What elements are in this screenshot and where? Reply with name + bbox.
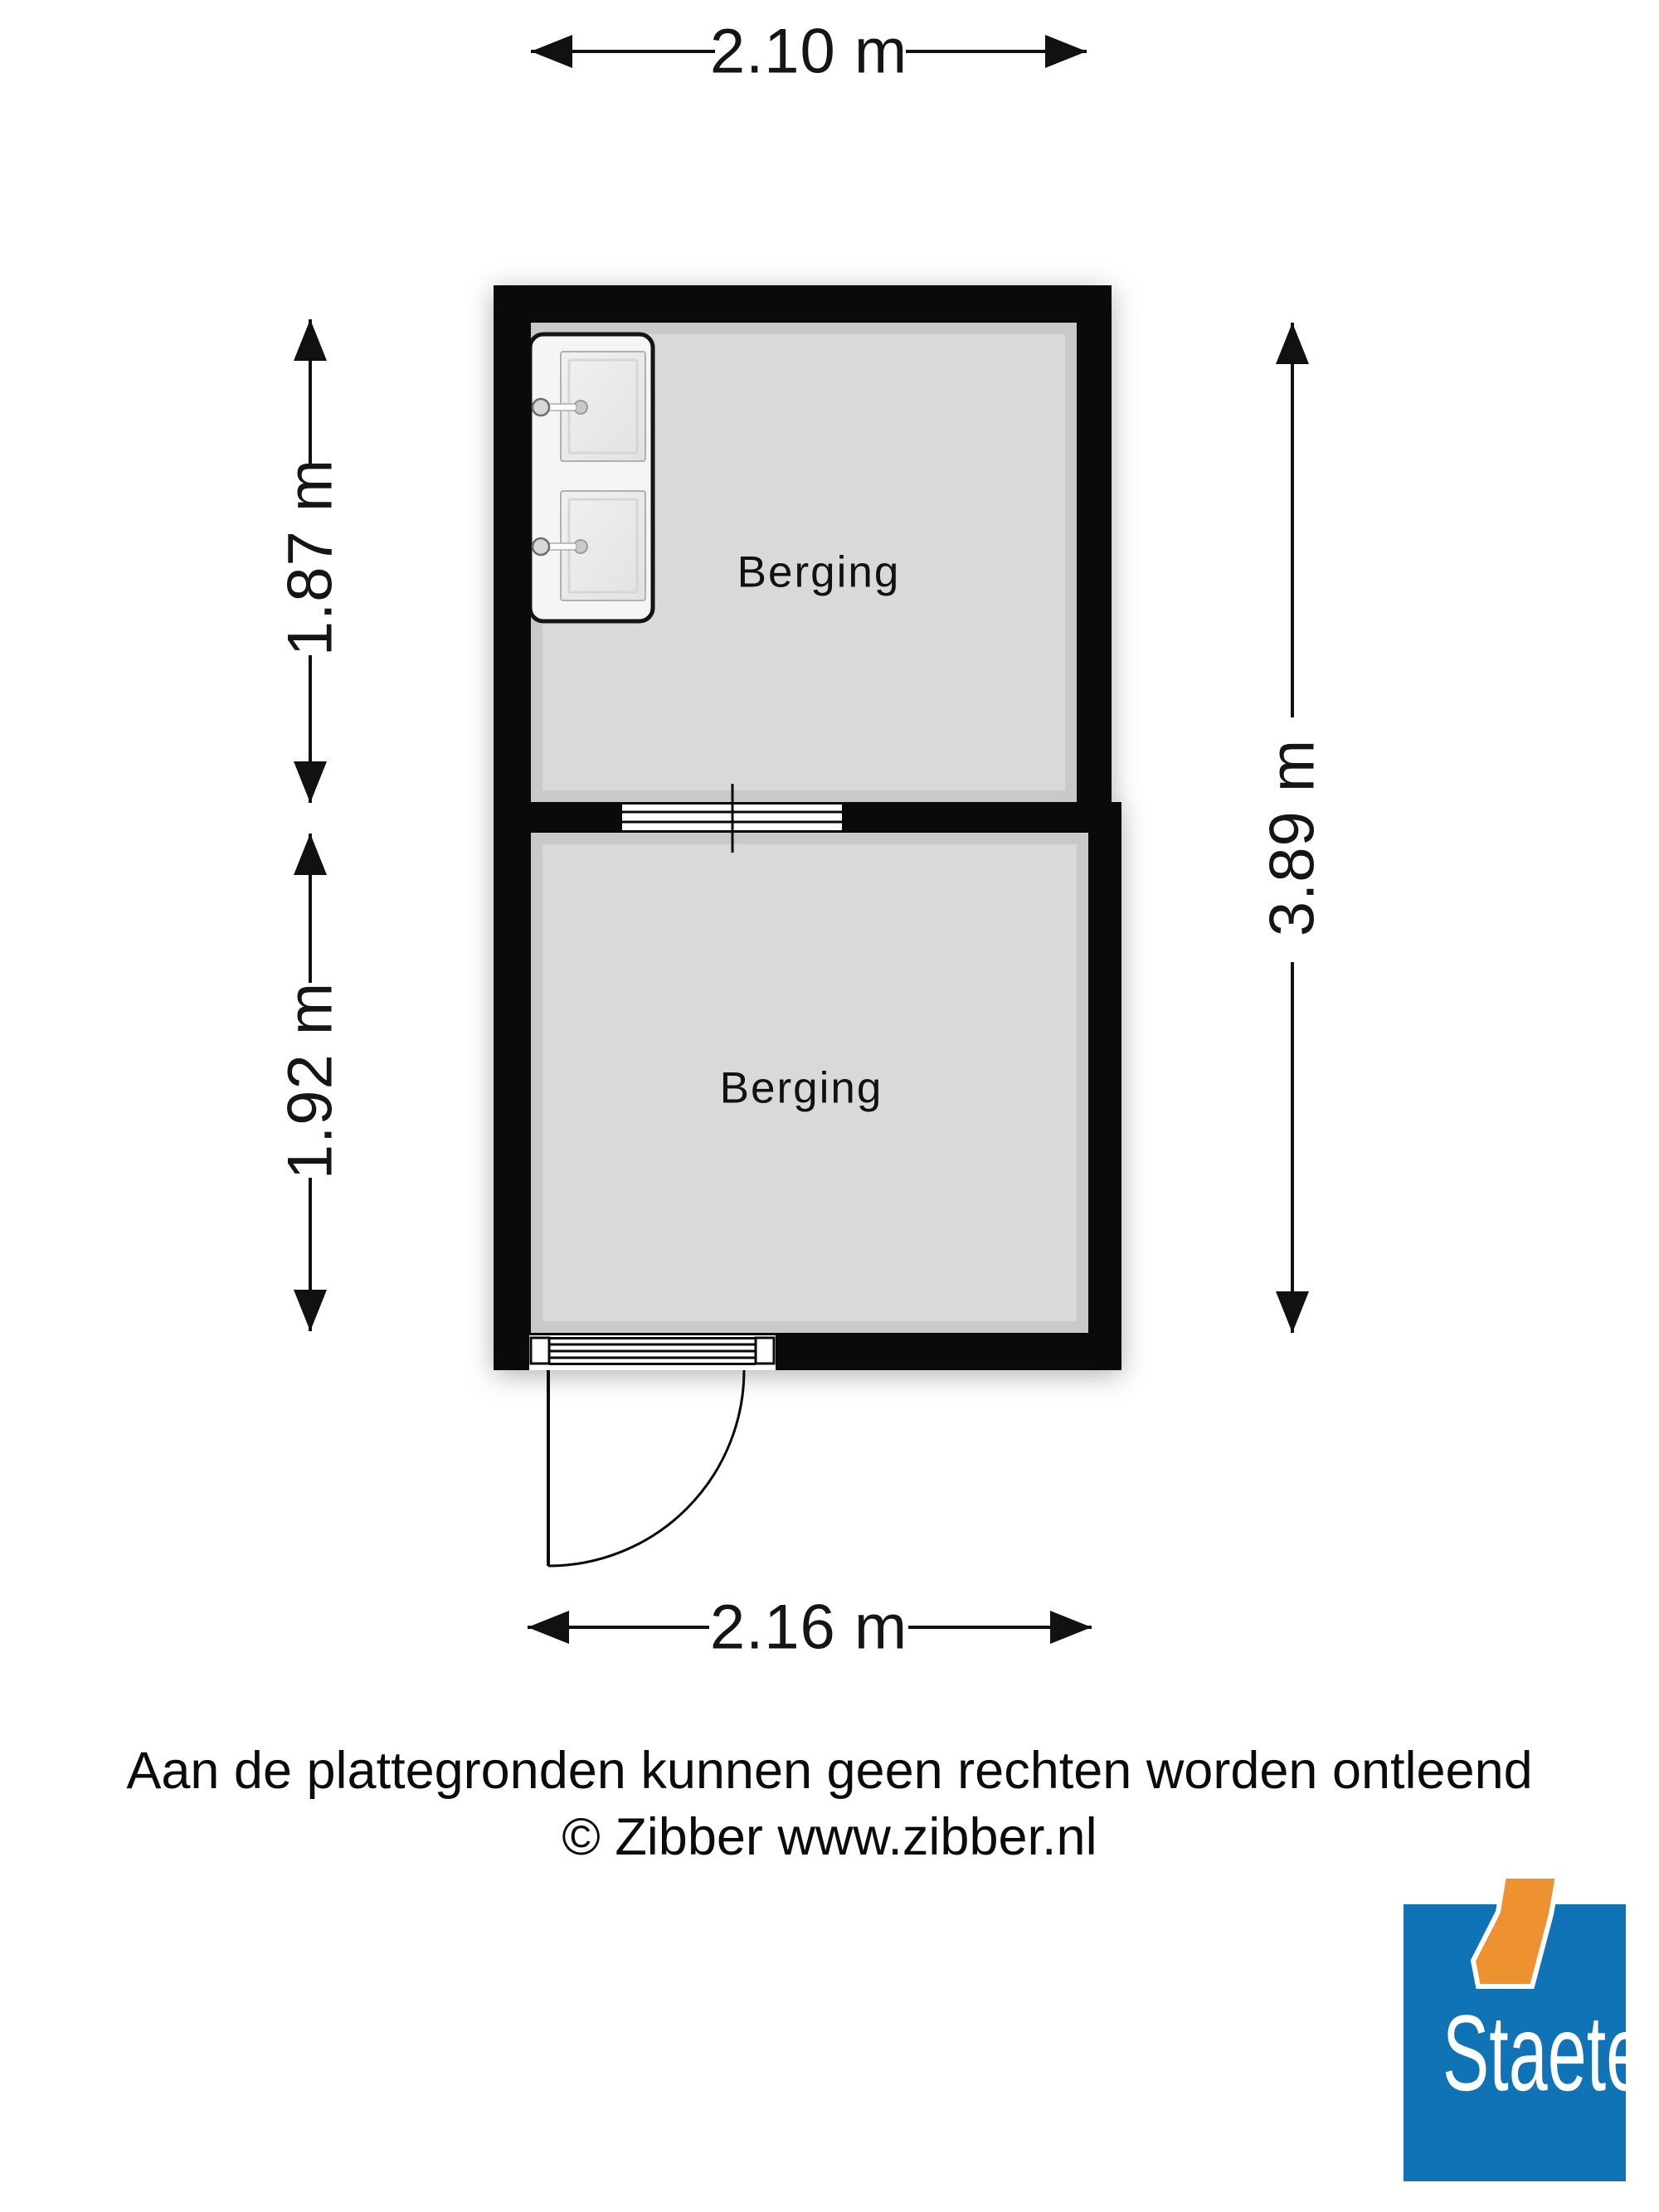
floorplan-page: 2.10 m 1.87 m 1.92 m 3.89 m 2.16 m Bergi…: [0, 0, 1659, 2212]
dimension-left-upper: 1.87 m: [275, 459, 347, 656]
door-swing-icon: [548, 1370, 744, 1566]
double-sink-icon: [530, 334, 653, 621]
wall-right-lower: [1088, 802, 1121, 1370]
footer: Aan de plattegronden kunnen geen rechten…: [0, 1738, 1659, 1870]
copyright-text: © Zibber www.zibber.nl: [0, 1804, 1659, 1870]
staete-logo: Staete: [1404, 1876, 1626, 2181]
wall-top: [494, 285, 1112, 323]
wall-middle-right: [842, 802, 1088, 833]
dimension-left-lower: 1.92 m: [275, 982, 347, 1179]
staete-logo-text: Staete: [1443, 1999, 1587, 2107]
wall-bottom-left-stub: [494, 1333, 531, 1370]
wall-bottom-right: [776, 1333, 1121, 1370]
wall-middle-left: [531, 802, 622, 833]
dimension-right: 3.89 m: [1257, 739, 1329, 936]
room-label-lower: Berging: [720, 1063, 883, 1114]
dimension-top: 2.10 m: [710, 16, 907, 88]
door-frame: [529, 1333, 776, 1370]
wall-left: [494, 285, 531, 1370]
dimension-bottom: 2.16 m: [710, 1592, 907, 1664]
room-label-upper: Berging: [737, 547, 901, 598]
staete-logo-flag-icon: [1404, 1876, 1626, 1992]
disclaimer-text: Aan de plattegronden kunnen geen rechten…: [0, 1738, 1659, 1804]
wall-right-upper: [1077, 285, 1112, 833]
